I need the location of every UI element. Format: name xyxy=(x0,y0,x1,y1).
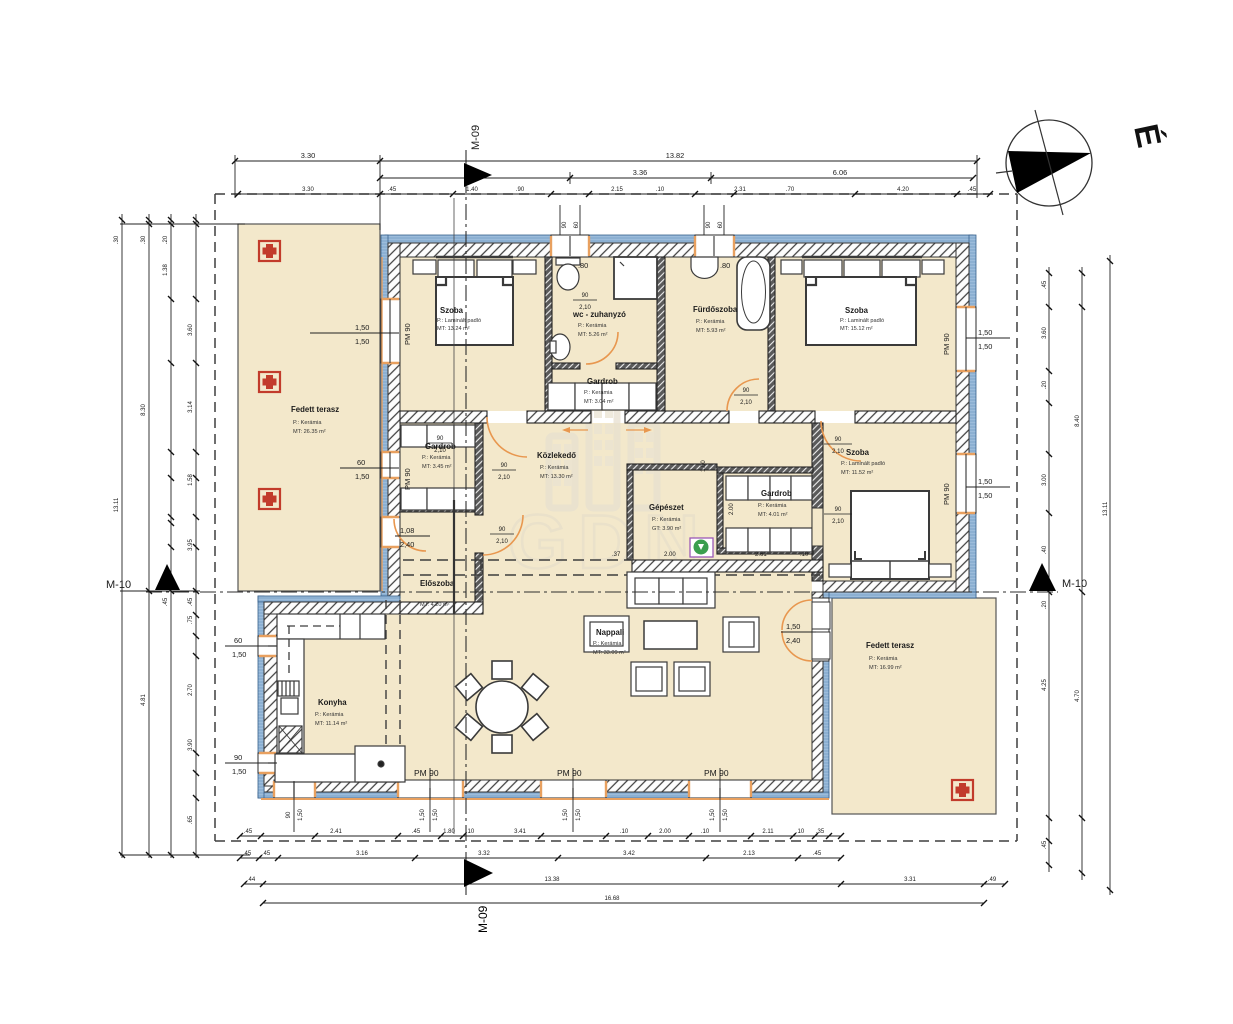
svg-text:1,50: 1,50 xyxy=(978,342,992,351)
svg-text:.30: .30 xyxy=(141,235,147,244)
svg-text:13.11: 13.11 xyxy=(114,497,120,512)
svg-text:PM 90: PM 90 xyxy=(942,333,951,355)
svg-text:Gépészet: Gépészet xyxy=(649,503,684,512)
svg-text:M-09: M-09 xyxy=(476,905,490,933)
svg-text:1,50: 1,50 xyxy=(355,472,369,481)
svg-text:2,10: 2,10 xyxy=(832,519,844,525)
svg-text:4.20: 4.20 xyxy=(897,187,909,193)
svg-text:P.: Kerámia: P.: Kerámia xyxy=(652,517,681,523)
svg-text:60: 60 xyxy=(718,221,724,228)
svg-text:.10: .10 xyxy=(796,829,805,835)
svg-text:.20: .20 xyxy=(1042,380,1048,389)
svg-text:3.60: 3.60 xyxy=(188,324,194,336)
svg-text:1,50: 1,50 xyxy=(298,809,304,821)
svg-text:M-10: M-10 xyxy=(1062,578,1087,590)
svg-text:1,50: 1,50 xyxy=(563,809,569,821)
svg-text:4.25: 4.25 xyxy=(1042,679,1048,691)
svg-text:.49: .49 xyxy=(988,877,997,883)
svg-text:MT: 13.24 m²: MT: 13.24 m² xyxy=(437,326,470,332)
svg-text:P.: Kerámia: P.: Kerámia xyxy=(315,712,344,718)
svg-text:P.: Kerámia: P.: Kerámia xyxy=(422,455,451,461)
svg-text:1,50: 1,50 xyxy=(576,809,582,821)
svg-text:13.11: 13.11 xyxy=(1103,501,1109,516)
svg-text:60: 60 xyxy=(574,221,580,228)
svg-text:MT: 3.04 m²: MT: 3.04 m² xyxy=(584,399,614,405)
svg-text:90: 90 xyxy=(582,293,589,299)
svg-text:.10: .10 xyxy=(620,829,629,835)
svg-text:.30: .30 xyxy=(114,235,120,244)
svg-text:Fedett terasz: Fedett terasz xyxy=(291,405,339,414)
svg-text:2,40: 2,40 xyxy=(786,636,800,645)
svg-text:2.70: 2.70 xyxy=(188,684,194,696)
svg-text:.45: .45 xyxy=(163,597,169,606)
svg-text:MT: 33.09 m²: MT: 33.09 m² xyxy=(593,650,626,656)
svg-text:2,40: 2,40 xyxy=(400,540,414,549)
svg-text:2,10: 2,10 xyxy=(498,475,510,481)
svg-text:.45: .45 xyxy=(243,851,252,857)
svg-text:.90: .90 xyxy=(516,187,525,193)
svg-text:.45: .45 xyxy=(1042,280,1048,289)
svg-text:P.: Kerámia: P.: Kerámia xyxy=(593,641,622,647)
svg-text:.44: .44 xyxy=(247,877,256,883)
svg-text:2.15: 2.15 xyxy=(611,187,623,193)
svg-text:3.95: 3.95 xyxy=(188,539,194,551)
svg-text:1.38: 1.38 xyxy=(163,264,169,276)
svg-text:.75: .75 xyxy=(188,615,194,624)
svg-text:16.68: 16.68 xyxy=(604,896,620,902)
svg-text:3.00: 3.00 xyxy=(1042,474,1048,486)
svg-text:.45: .45 xyxy=(813,851,822,857)
svg-text:PM 90: PM 90 xyxy=(942,483,951,505)
svg-text:1.40: 1.40 xyxy=(466,187,478,193)
svg-text:90: 90 xyxy=(437,436,444,442)
svg-text:2.00: 2.00 xyxy=(664,552,676,558)
svg-text:Szoba: Szoba xyxy=(845,306,869,315)
svg-text:.40: .40 xyxy=(1042,545,1048,554)
svg-text:wc - zuhanyzó: wc - zuhanyzó xyxy=(572,310,626,319)
svg-text:.45: .45 xyxy=(1042,840,1048,849)
svg-text:M-09: M-09 xyxy=(470,125,482,150)
svg-text:2.00: 2.00 xyxy=(659,829,671,835)
svg-text:P.: Kerámia: P.: Kerámia xyxy=(869,656,898,662)
svg-text:MT: 5.26 m²: MT: 5.26 m² xyxy=(578,332,608,338)
svg-text:.37: .37 xyxy=(612,552,621,558)
svg-text:MT: 4.01 m²: MT: 4.01 m² xyxy=(758,512,788,518)
svg-text:90: 90 xyxy=(499,527,506,533)
svg-text:MT: 11.52 m²: MT: 11.52 m² xyxy=(841,470,873,476)
svg-text:MT: 5.93 m²: MT: 5.93 m² xyxy=(696,328,726,334)
svg-text:.65: .65 xyxy=(188,815,194,824)
svg-text:1,50: 1,50 xyxy=(420,809,426,821)
svg-text:.45: .45 xyxy=(262,851,271,857)
svg-text:1,50: 1,50 xyxy=(232,650,246,659)
svg-text:MT: 11.14 m²: MT: 11.14 m² xyxy=(315,721,347,727)
svg-text:Konyha: Konyha xyxy=(318,698,347,707)
svg-text:8.30: 8.30 xyxy=(141,404,147,416)
svg-text:6.06: 6.06 xyxy=(833,168,847,177)
svg-text:1.00: 1.00 xyxy=(701,460,707,472)
svg-text:1,50: 1,50 xyxy=(978,328,992,337)
svg-text:.10: .10 xyxy=(701,829,710,835)
svg-text:1.80: 1.80 xyxy=(443,829,455,835)
svg-text:.35: .35 xyxy=(816,829,825,835)
svg-text:8.40: 8.40 xyxy=(1075,415,1081,427)
svg-text:1.58: 1.58 xyxy=(188,474,194,486)
svg-text:MT: 3.45 m²: MT: 3.45 m² xyxy=(422,464,452,470)
svg-text:.45: .45 xyxy=(412,829,421,835)
svg-text:PM 90: PM 90 xyxy=(414,768,439,778)
svg-text:90: 90 xyxy=(743,388,750,394)
svg-text:P.: Kerámia: P.: Kerámia xyxy=(540,465,569,471)
svg-text:2,10: 2,10 xyxy=(496,539,508,545)
svg-text:1,50: 1,50 xyxy=(710,809,716,821)
svg-text:2.61: 2.61 xyxy=(755,552,767,558)
svg-text:.70: .70 xyxy=(786,187,795,193)
svg-text:90: 90 xyxy=(286,811,292,818)
svg-text:90: 90 xyxy=(562,221,568,228)
svg-text:Gardrob: Gardrob xyxy=(761,489,792,498)
svg-text:4.81: 4.81 xyxy=(141,694,147,706)
svg-text:GT: 3.90 m²: GT: 3.90 m² xyxy=(652,526,681,532)
svg-text:4.70: 4.70 xyxy=(1075,690,1081,702)
svg-text:3.16: 3.16 xyxy=(356,851,368,857)
svg-text:3.30: 3.30 xyxy=(302,187,314,193)
svg-text:Nappali: Nappali xyxy=(596,628,624,637)
svg-text:2.31: 2.31 xyxy=(734,187,746,193)
svg-text:Fürdőszoba: Fürdőszoba xyxy=(693,305,738,314)
svg-text:Szoba: Szoba xyxy=(846,448,870,457)
svg-text:2.41: 2.41 xyxy=(330,829,342,835)
svg-text:MT: 16.99 m²: MT: 16.99 m² xyxy=(869,665,902,671)
svg-text:1,50: 1,50 xyxy=(355,337,369,346)
svg-text:M-10: M-10 xyxy=(106,579,131,591)
svg-text:2,10: 2,10 xyxy=(832,449,844,455)
svg-text:3.90: 3.90 xyxy=(188,739,194,751)
svg-text:1,50: 1,50 xyxy=(355,323,369,332)
svg-text:3.42: 3.42 xyxy=(623,851,635,857)
svg-text:3.30: 3.30 xyxy=(301,151,315,160)
svg-text:3.32: 3.32 xyxy=(478,851,490,857)
svg-text:90: 90 xyxy=(835,437,842,443)
svg-text:PM 90: PM 90 xyxy=(403,323,412,345)
svg-text:3.36: 3.36 xyxy=(633,168,647,177)
svg-text:1,50: 1,50 xyxy=(978,477,992,486)
svg-text:90: 90 xyxy=(706,221,712,228)
svg-text:.45: .45 xyxy=(388,187,397,193)
svg-text:90: 90 xyxy=(234,753,242,762)
svg-text:P.: Kerámia: P.: Kerámia xyxy=(578,323,607,329)
svg-text:MT: 15.12 m²: MT: 15.12 m² xyxy=(840,326,873,332)
svg-text:2,10: 2,10 xyxy=(434,448,446,454)
svg-text:.10: .10 xyxy=(800,552,809,558)
svg-text:13.38: 13.38 xyxy=(544,877,560,883)
svg-text:2.00: 2.00 xyxy=(729,503,735,515)
svg-text:P.: Laminált padló: P.: Laminált padló xyxy=(437,318,481,324)
svg-text:.10: .10 xyxy=(656,187,665,193)
svg-text:90: 90 xyxy=(835,507,842,513)
svg-text:1,50: 1,50 xyxy=(433,809,439,821)
svg-text:3.60: 3.60 xyxy=(1042,327,1048,339)
svg-text:3.41: 3.41 xyxy=(514,829,526,835)
svg-text:.80: .80 xyxy=(720,261,730,270)
svg-text:P.: Kerámia: P.: Kerámia xyxy=(696,319,725,325)
svg-text:Fedett terasz: Fedett terasz xyxy=(866,641,914,650)
svg-text:1,50: 1,50 xyxy=(723,809,729,821)
svg-text:13.82: 13.82 xyxy=(666,151,685,160)
svg-text:P.: Kerámia: P.: Kerámia xyxy=(293,420,322,426)
svg-text:P.: Laminált padló: P.: Laminált padló xyxy=(840,318,884,324)
svg-text:P.: Kerámia: P.: Kerámia xyxy=(758,503,787,509)
svg-text:Előszoba: Előszoba xyxy=(420,579,455,588)
svg-text:60: 60 xyxy=(357,458,365,467)
svg-text:2,10: 2,10 xyxy=(740,400,752,406)
svg-text:MT: 4.20 m²: MT: 4.20 m² xyxy=(420,602,450,608)
svg-text:2.13: 2.13 xyxy=(743,851,755,857)
svg-text:.45: .45 xyxy=(244,829,253,835)
svg-text:1,50: 1,50 xyxy=(786,622,800,631)
svg-text:.20: .20 xyxy=(163,235,169,244)
svg-text:PM 90: PM 90 xyxy=(704,768,729,778)
svg-text:3.31: 3.31 xyxy=(904,877,916,883)
svg-text:3.14: 3.14 xyxy=(188,401,194,413)
svg-text:Gardrob: Gardrob xyxy=(587,377,618,386)
svg-text:PM 90: PM 90 xyxy=(403,468,412,490)
svg-text:MT: 13.30 m²: MT: 13.30 m² xyxy=(540,474,573,480)
svg-text:.10: .10 xyxy=(466,829,475,835)
svg-text:1,50: 1,50 xyxy=(232,767,246,776)
svg-text:Szoba: Szoba xyxy=(440,306,464,315)
svg-text:.45: .45 xyxy=(188,597,194,606)
svg-text:1,50: 1,50 xyxy=(978,491,992,500)
svg-text:PM 90: PM 90 xyxy=(557,768,582,778)
svg-text:2,10: 2,10 xyxy=(579,305,591,311)
svg-text:P.: Kerámia: P.: Kerámia xyxy=(584,390,613,396)
svg-text:.45: .45 xyxy=(968,187,977,193)
svg-text:.80: .80 xyxy=(578,261,588,270)
svg-text:2.11: 2.11 xyxy=(762,829,774,835)
svg-text:60: 60 xyxy=(234,636,242,645)
svg-text:90: 90 xyxy=(501,463,508,469)
svg-text:MT: 26.35 m²: MT: 26.35 m² xyxy=(293,429,326,435)
svg-text:.20: .20 xyxy=(1042,600,1048,609)
svg-text:Közlekedő: Közlekedő xyxy=(537,451,576,460)
svg-text:1,08: 1,08 xyxy=(400,526,414,535)
svg-text:P.: Laminált padló: P.: Laminált padló xyxy=(841,461,885,467)
